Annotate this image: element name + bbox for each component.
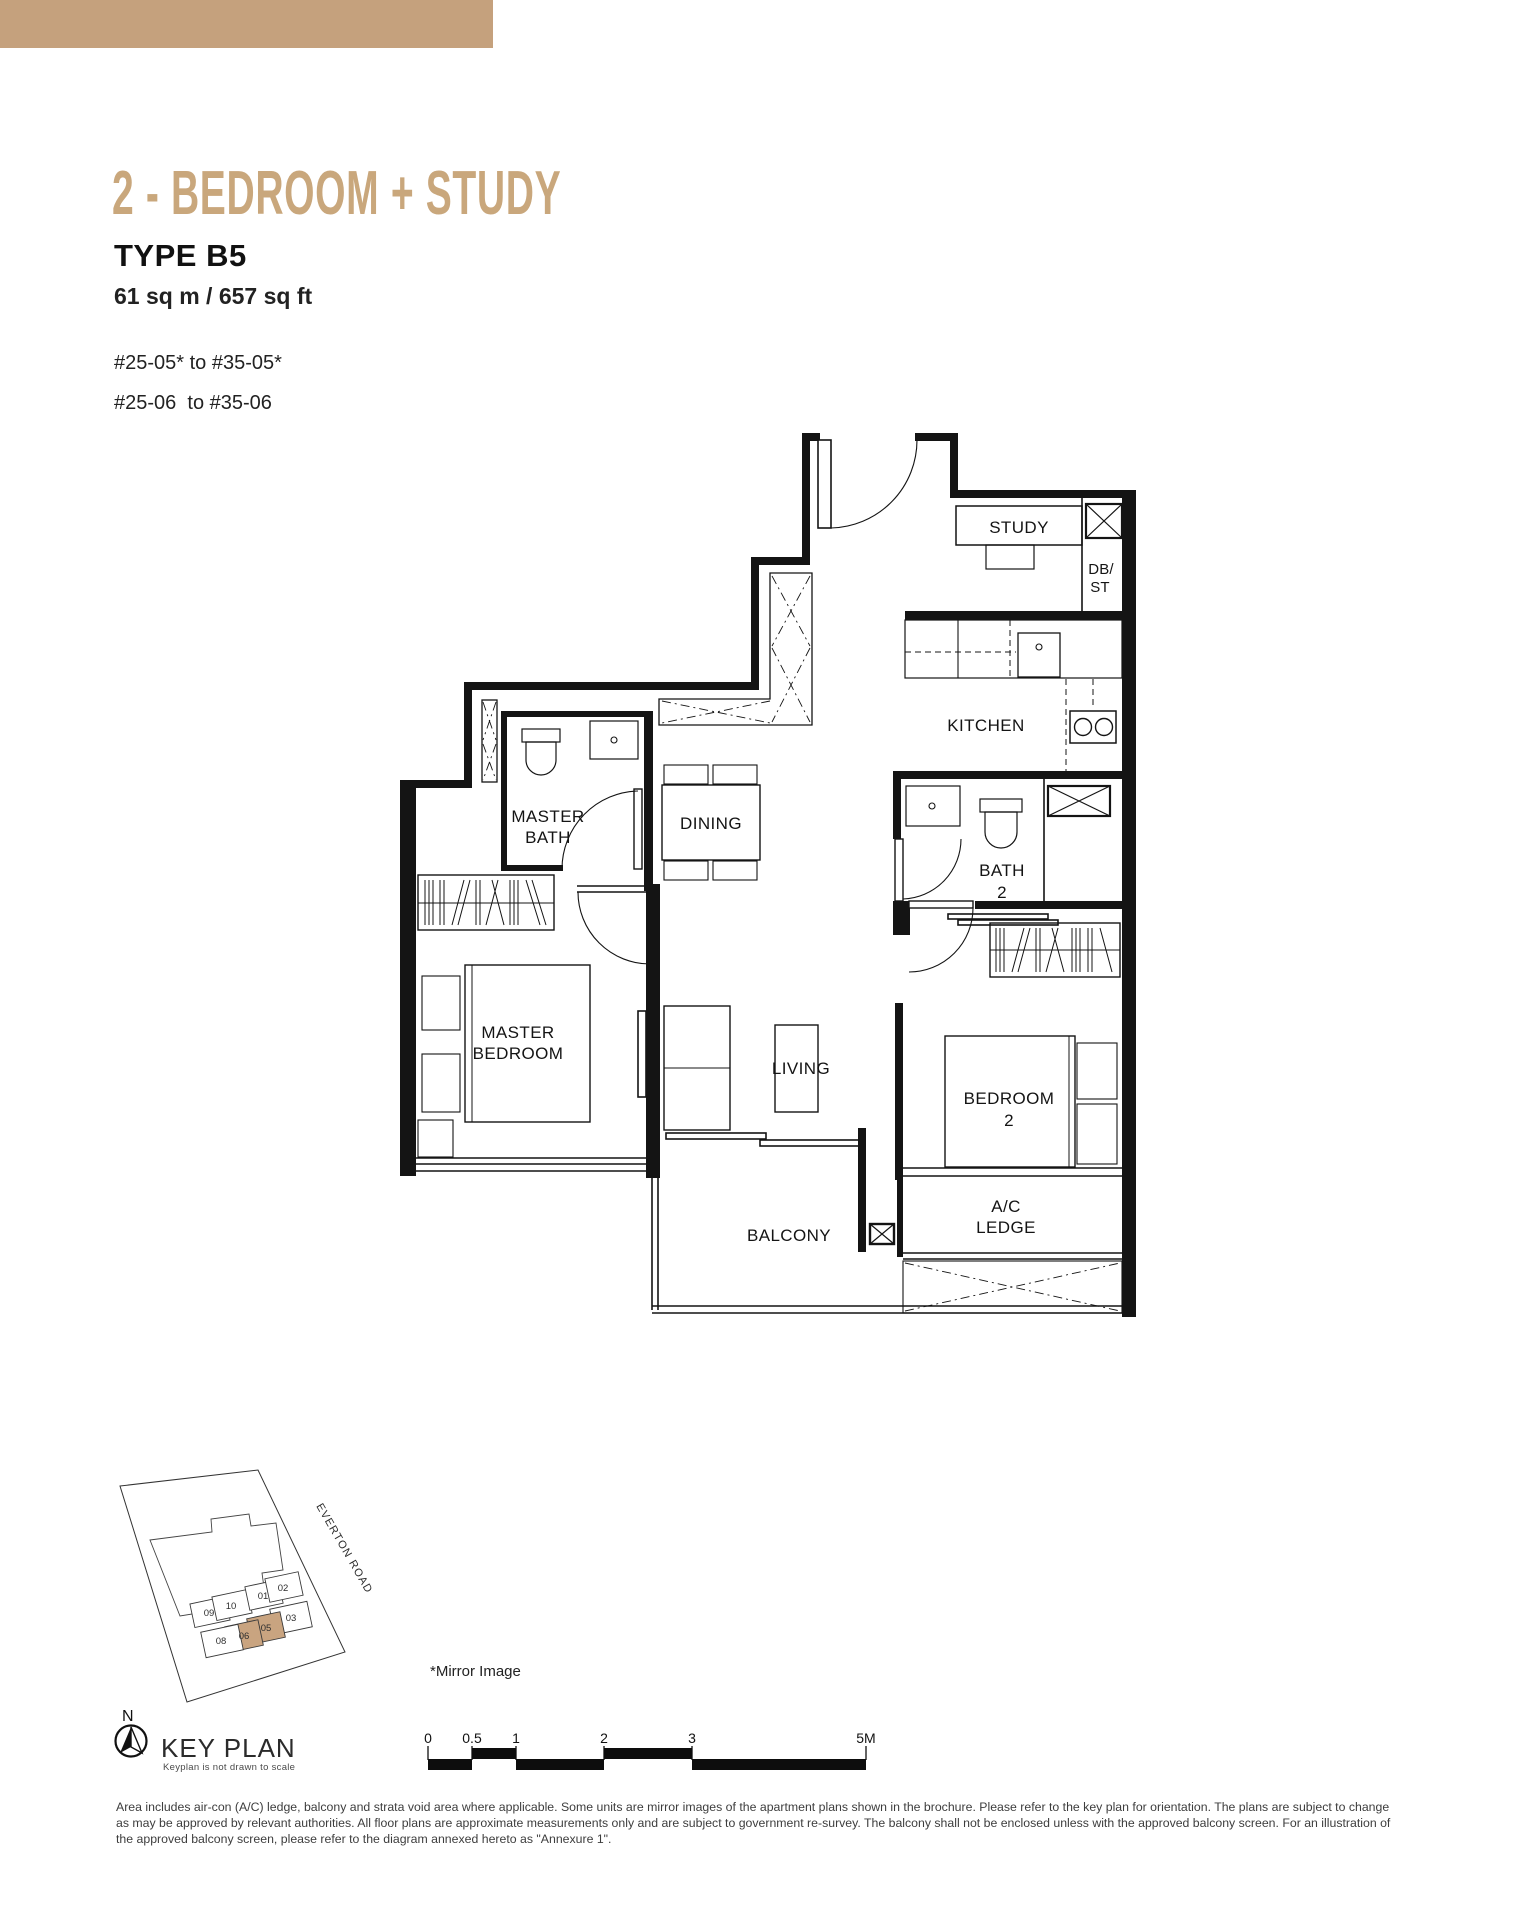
label-living: LIVING [772, 1059, 830, 1078]
master-bedroom-door-swing [578, 892, 650, 964]
label-kitchen: KITCHEN [947, 716, 1024, 735]
bathroom-fixtures [522, 721, 1022, 848]
study-shaft-box [1086, 504, 1122, 538]
road-label: EVERTON ROAD [313, 1502, 374, 1596]
label-db: DB/ [1088, 561, 1114, 578]
label-bedroom2-2: 2 [1004, 1111, 1014, 1130]
floorplan: STUDY DB/ ST KITCHEN MASTER BATH DINING … [400, 433, 1136, 1317]
master-bedroom-furniture [418, 875, 590, 1157]
bedroom2-door-leaf [909, 901, 973, 908]
bedroom2-furniture [945, 923, 1120, 1167]
scale-bar: 0 0.5 1 2 3 5M [424, 1730, 876, 1770]
bedroom2-wardrobe [990, 923, 1120, 977]
compass-needle-light [131, 1727, 142, 1753]
label-st: ST [1090, 579, 1110, 596]
unit-label-03: 03 [286, 1613, 297, 1624]
scale-2: 2 [600, 1730, 608, 1746]
unit-label-02: 02 [278, 1583, 289, 1594]
label-ac-2: LEDGE [976, 1218, 1036, 1237]
unit-label-05: 05 [261, 1623, 272, 1634]
unit-label-09: 09 [204, 1608, 215, 1619]
label-ac-1: A/C [991, 1197, 1021, 1216]
balcony-box [870, 1224, 894, 1244]
label-bedroom2-1: BEDROOM [964, 1089, 1055, 1108]
scale-3: 3 [688, 1730, 696, 1746]
label-bath2-2: 2 [997, 883, 1007, 902]
north-label: N [122, 1708, 134, 1725]
unit-label-01: 01 [258, 1591, 269, 1602]
label-bath2-1: BATH [979, 861, 1025, 880]
label-dining: DINING [680, 814, 742, 833]
bath2-toilet [980, 799, 1022, 848]
scale-05: 0.5 [462, 1730, 482, 1746]
scale-labels: 0 0.5 1 2 3 5M [424, 1730, 876, 1746]
label-master-bath-2: BATH [525, 828, 571, 847]
doors [562, 440, 973, 972]
brochure-page: 2 - BEDROOM + STUDY TYPE B5 61 sq m / 65… [0, 0, 1536, 1920]
scale-1: 1 [512, 1730, 520, 1746]
study-furniture [956, 506, 1082, 569]
entry-door-leaf [818, 440, 831, 528]
label-master-bedroom-1: MASTER [481, 1023, 554, 1042]
master-bath-sink [590, 721, 638, 759]
compass-needle-dark [120, 1727, 131, 1753]
label-master-bath-1: MASTER [511, 807, 584, 826]
scale-segments [428, 1748, 866, 1770]
kitchen-sink [1018, 633, 1060, 677]
graphics-layer: STUDY DB/ ST KITCHEN MASTER BATH DINING … [0, 0, 1536, 1920]
shaft-outline [482, 700, 497, 782]
north-compass: N [116, 1708, 147, 1757]
label-master-bedroom-2: BEDROOM [473, 1044, 564, 1063]
label-balcony: BALCONY [747, 1226, 831, 1245]
bath2-sink [906, 786, 960, 826]
study-chair [986, 545, 1034, 569]
cooker-hob [1070, 711, 1116, 743]
kitchen-fittings [905, 620, 1122, 771]
unit-label-06: 06 [239, 1631, 250, 1642]
bath2-door-leaf [895, 839, 903, 901]
bedroom2-door-swing [909, 908, 973, 972]
unit-label-08: 08 [216, 1636, 227, 1647]
room-labels: STUDY DB/ ST KITCHEN MASTER BATH DINING … [473, 518, 1115, 1245]
master-bath-door-swing [562, 791, 638, 869]
entry-door-swing [831, 440, 917, 528]
master-bedroom-door-leaf [577, 886, 650, 892]
corridor-cabinet-outline [659, 573, 812, 725]
bath2-door-swing [903, 839, 961, 899]
unit-label-10: 10 [226, 1601, 237, 1612]
master-bath-toilet [522, 729, 560, 775]
keyplan: 09 10 01 02 03 05 06 08 EVERTON ROAD N [116, 1470, 375, 1757]
master-bath-door-leaf [634, 789, 642, 869]
scale-0: 0 [424, 1730, 432, 1746]
label-study: STUDY [989, 518, 1049, 537]
master-wardrobe [418, 875, 554, 930]
scale-5m: 5M [856, 1730, 875, 1746]
bath2-shaft-box [1048, 786, 1110, 816]
